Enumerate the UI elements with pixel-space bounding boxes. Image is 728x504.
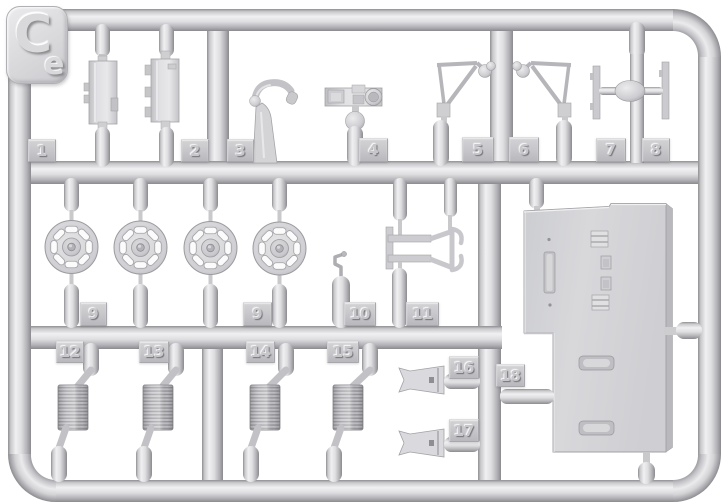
part-tab-2: 2 — [181, 139, 209, 162]
part-tab-18-label: 18 — [500, 367, 521, 385]
part-1-group — [84, 24, 118, 167]
part-tab-8-label: 8 — [651, 141, 661, 159]
part-tab-11: 11 — [406, 302, 439, 326]
part-2-group — [145, 24, 179, 167]
part-tab-15-label: 15 — [333, 343, 354, 361]
part-tab-13: 13 — [139, 341, 169, 363]
part-7-8-right-plate — [662, 62, 669, 119]
plate-clip-bottom — [592, 295, 609, 310]
part-9-wheels — [45, 221, 306, 276]
part-tab-12: 12 — [56, 341, 84, 363]
part-1-box — [89, 61, 117, 124]
sprue-gate-label: C e — [6, 6, 68, 84]
divider-rail-middle-right — [478, 161, 501, 486]
frame-corner-br — [673, 454, 721, 502]
sprue-runner — [556, 120, 572, 166]
divider-rail-bottom-left — [202, 343, 223, 486]
part-tab-1-label: 1 — [37, 142, 47, 160]
part-tab-7-label: 7 — [606, 141, 616, 159]
gate-label-small-letter: e — [44, 50, 64, 80]
sprue-graphic — [0, 0, 728, 504]
part-tab-11-label: 11 — [412, 305, 433, 323]
part-18-feed-runner — [500, 389, 554, 404]
sprue-runner — [529, 178, 544, 209]
part-9-wheel-2 — [114, 221, 167, 274]
frame-corner-tr — [673, 9, 721, 57]
sprue-photo: 1 2 3 4 5 6 7 8 9 9 10 11 12 13 14 15 16… — [0, 0, 728, 504]
frame-top-rail — [56, 9, 674, 31]
part-tab-3-label: 3 — [235, 142, 245, 160]
sprue-runner — [433, 120, 449, 166]
part-7-8-left-plate — [593, 66, 600, 119]
part-tab-17: 17 — [449, 419, 479, 442]
part-15-spring — [333, 385, 363, 430]
sprue-runner — [638, 462, 655, 484]
sprue-runner — [159, 127, 174, 167]
frame-right-rail — [698, 57, 721, 454]
sprue-runner — [95, 127, 110, 167]
part-3-column — [253, 103, 277, 163]
part-tab-2-label: 2 — [190, 142, 200, 160]
part-tab-16-label: 16 — [454, 359, 475, 377]
upper-cross-rail — [26, 161, 702, 184]
part-tab-1: 1 — [28, 139, 56, 162]
part-tab-5: 5 — [462, 137, 494, 162]
part-tab-6: 6 — [509, 137, 539, 162]
part-14-spring — [250, 385, 280, 430]
part-9-wheel-1 — [45, 221, 98, 274]
divider-rail-top-left — [207, 28, 229, 168]
plate-clip-top — [591, 231, 608, 247]
sprue-runner — [95, 24, 110, 57]
part-tab-10-label: 10 — [350, 305, 371, 323]
sprue-runner — [392, 268, 407, 328]
part-tab-18: 18 — [496, 364, 525, 387]
part-tab-9b-label: 9 — [252, 305, 262, 323]
part-tab-12-label: 12 — [60, 343, 81, 361]
part-tab-14-label: 14 — [250, 343, 271, 361]
part-13-spring — [143, 385, 173, 430]
part-tab-13-label: 13 — [144, 343, 165, 361]
part-tab-9a-label: 9 — [88, 305, 98, 323]
sprue-runner — [393, 178, 407, 221]
part-tab-9a: 9 — [80, 302, 107, 326]
part-tab-3: 3 — [227, 139, 254, 162]
part-tab-4: 4 — [359, 138, 388, 162]
part-tab-7: 7 — [596, 138, 626, 162]
part-tab-16: 16 — [449, 356, 479, 379]
sprue-runner — [629, 22, 645, 58]
part-3-group — [250, 83, 300, 163]
part-9-wheel-4 — [253, 222, 306, 275]
frame-left-rail — [8, 57, 31, 454]
part-tab-10: 10 — [344, 302, 376, 326]
part-tab-9b: 9 — [243, 302, 272, 326]
part-tab-15: 15 — [327, 341, 359, 363]
part-tab-17-label: 17 — [454, 422, 475, 440]
part-12-spring — [58, 385, 88, 430]
part-18-group — [500, 178, 702, 484]
sprue-runner — [444, 178, 457, 217]
part-tab-8: 8 — [642, 138, 670, 162]
part-tab-4-label: 4 — [368, 141, 378, 159]
part-tab-14: 14 — [246, 341, 275, 363]
part-10-crank — [335, 254, 344, 277]
part-9-wheel-3 — [184, 222, 237, 275]
sprue-runner — [676, 322, 702, 339]
part-tab-6-label: 6 — [519, 141, 529, 159]
frame-corner-bl — [8, 454, 56, 502]
part-tab-5-label: 5 — [473, 141, 483, 159]
frame-bottom-rail — [56, 480, 674, 502]
